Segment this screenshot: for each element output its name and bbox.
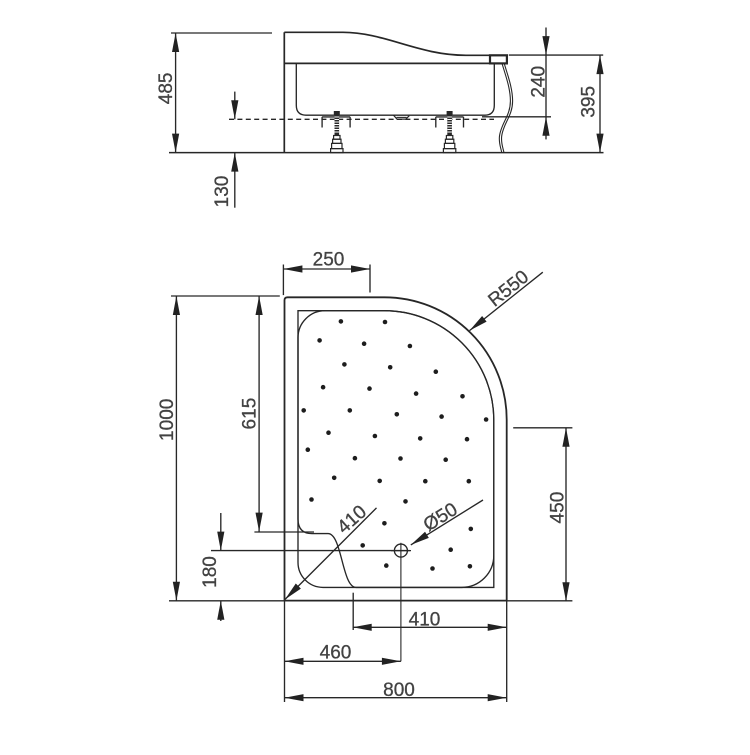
svg-text:395: 395: [579, 86, 600, 118]
svg-text:Ø50: Ø50: [420, 499, 462, 536]
svg-text:R550: R550: [484, 267, 533, 312]
svg-text:450: 450: [548, 492, 569, 524]
svg-text:800: 800: [383, 680, 415, 701]
svg-text:410: 410: [409, 610, 441, 631]
svg-text:485: 485: [156, 73, 177, 105]
svg-text:240: 240: [529, 66, 550, 98]
svg-text:460: 460: [320, 643, 352, 664]
svg-text:180: 180: [200, 556, 221, 588]
svg-text:1000: 1000: [157, 399, 178, 441]
svg-text:130: 130: [212, 176, 233, 208]
svg-text:615: 615: [240, 398, 261, 430]
svg-text:410: 410: [333, 502, 371, 539]
svg-text:250: 250: [313, 250, 345, 271]
